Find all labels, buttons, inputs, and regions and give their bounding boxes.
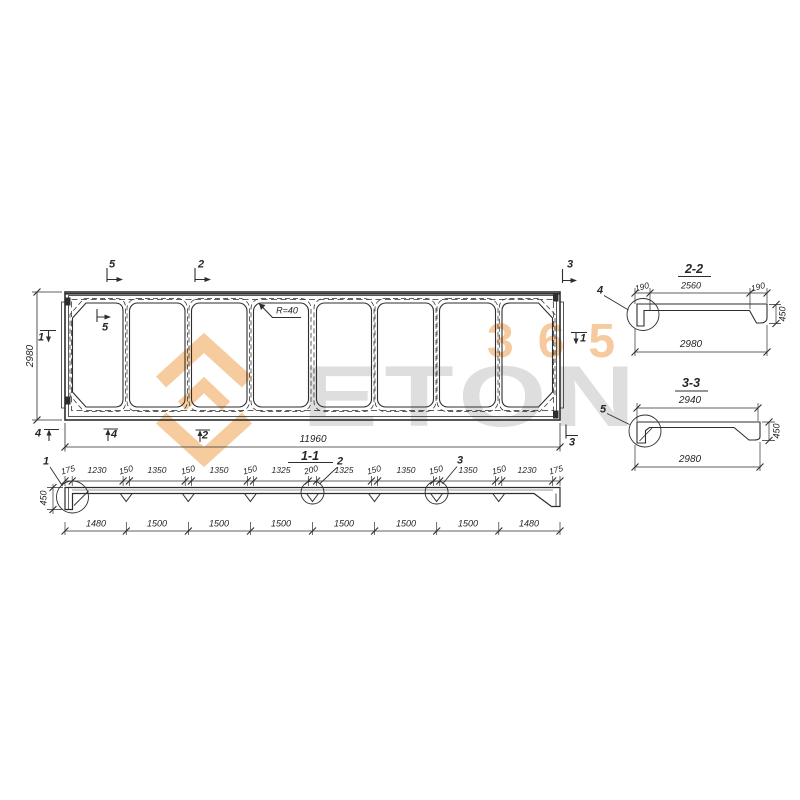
- dim-label: 450: [773, 423, 782, 438]
- cut-mark-label-1-right: 1: [580, 334, 586, 345]
- detail-label-1: 1: [43, 457, 49, 468]
- plan-hidden-edges: [70, 299, 555, 412]
- dim-label: 1350: [148, 466, 167, 475]
- dim-label: 1230: [88, 466, 107, 475]
- dim-plan-height: 2980: [26, 345, 36, 367]
- dim-label: 1325: [272, 466, 291, 475]
- cut-mark-label-4a-bottom: 4: [35, 429, 41, 440]
- plan-openings: [73, 303, 553, 407]
- detail-label-5: 5: [600, 405, 606, 416]
- drawing-sheet: ETON 365: [0, 0, 800, 800]
- dim-label: 1500: [271, 520, 291, 529]
- cut-mark-label-2-top: 2: [198, 260, 204, 271]
- detail-label-4: 4: [597, 286, 603, 297]
- cut-mark-label-1-left: 1: [38, 333, 44, 344]
- section-2-2-title: 2-2: [685, 263, 703, 276]
- dim-label: 1500: [147, 520, 167, 529]
- cut-mark-label-3-bottom: 3: [569, 438, 575, 449]
- dim-plan-width: 11960: [299, 435, 326, 445]
- cut-mark-label-3-top: 3: [567, 260, 573, 271]
- dim-label: 1350: [210, 466, 229, 475]
- dim-label: 1230: [518, 466, 537, 475]
- dim-label: 1500: [396, 520, 416, 529]
- dim-label: 1350: [397, 466, 416, 475]
- radius-annotation: R=40: [276, 307, 298, 316]
- dim-label: 2980: [680, 340, 702, 350]
- dim-label: 1500: [458, 520, 478, 529]
- section-1-1-profile: [65, 488, 560, 510]
- dim-label: 2980: [679, 455, 701, 465]
- dim-label: 1500: [334, 520, 354, 529]
- dim-label: 2560: [681, 282, 701, 291]
- dim-label: 450: [779, 306, 788, 321]
- cut-mark-label-5-inner: 5: [102, 323, 108, 334]
- section-3-3-title: 3-3: [682, 377, 700, 390]
- section-1-1-dimensions: [47, 476, 564, 535]
- cut-mark-arrows: [46, 277, 579, 436]
- dim-label: 2940: [679, 396, 701, 406]
- dim-label: 1500: [209, 520, 229, 529]
- dim-label: 1480: [519, 520, 539, 529]
- cut-mark-label-4b-bottom: 4: [111, 430, 117, 441]
- plan-corner-plates: [66, 294, 559, 419]
- dim-label: 1480: [86, 520, 106, 529]
- cut-mark-label-2-bottom: 2: [202, 431, 208, 442]
- plan-view-outline: [62, 292, 564, 420]
- dim-label: 1350: [459, 466, 478, 475]
- cut-mark-label-5-top: 5: [109, 260, 115, 271]
- dim-section11-height: 450: [40, 490, 49, 505]
- section-1-1-title: 1-1: [301, 450, 319, 463]
- dim-label: 1325: [335, 466, 354, 475]
